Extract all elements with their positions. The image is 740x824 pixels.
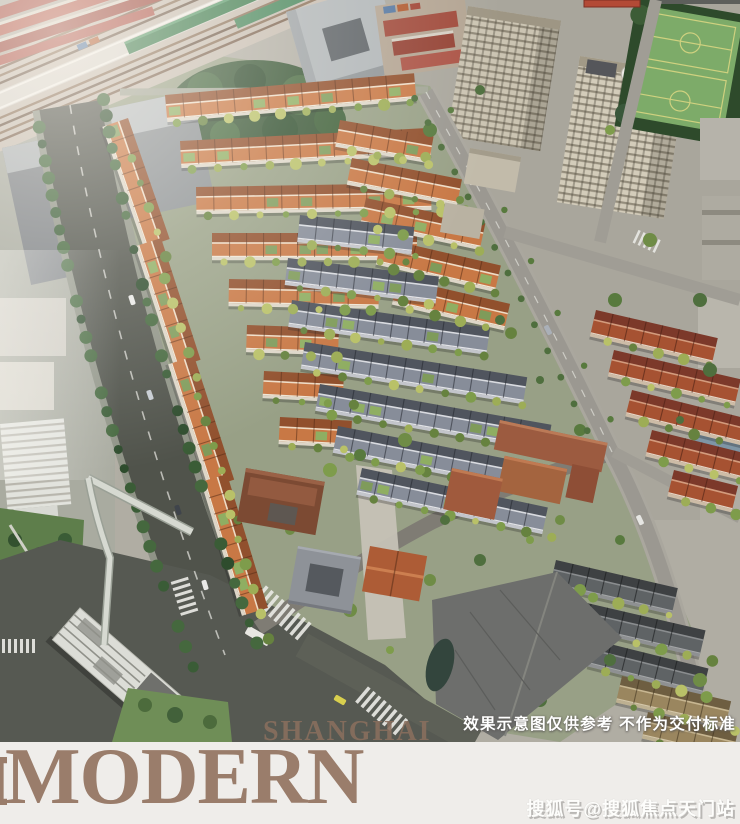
left-fade [0, 250, 120, 480]
footer-band: MODERN 搜狐号@搜狐焦点天门站 [0, 742, 740, 824]
aerial-render-canvas [0, 0, 740, 742]
watermark-text: 搜狐号@搜狐焦点天门站 [526, 795, 735, 821]
screenshot-root: SHANGHAI 效果示意图仅供参考 不作为交付标准 MODERN 搜狐号@搜狐… [0, 0, 740, 824]
aerial-render: SHANGHAI 效果示意图仅供参考 不作为交付标准 [0, 0, 740, 742]
disclaimer-text: 效果示意图仅供参考 不作为交付标准 [463, 712, 736, 734]
brand-word-modern: MODERN [5, 736, 363, 818]
